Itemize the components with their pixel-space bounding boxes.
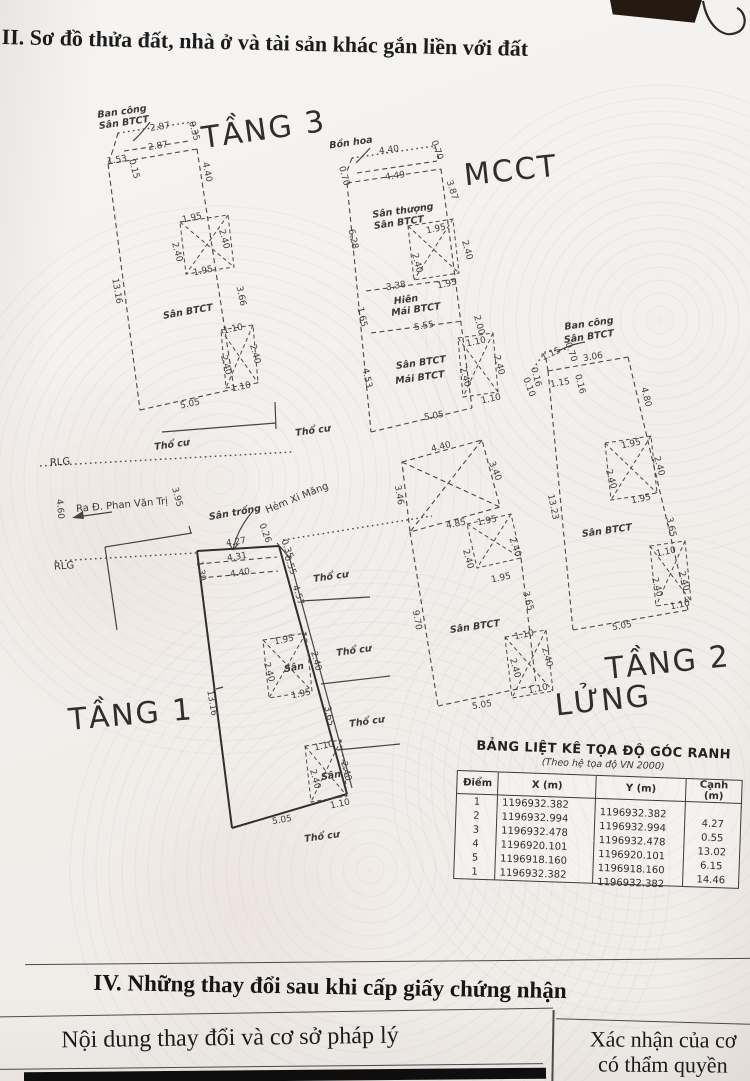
- dimension-label: 4.31: [226, 551, 247, 564]
- dimension-label: 4.40: [229, 567, 251, 580]
- scan-artifact-curl: [703, 1, 745, 34]
- dimension-label: 2.40: [539, 646, 554, 668]
- dimension-label: 1.10: [222, 322, 244, 336]
- section4-right-header-line1: Xác nhận của cơ: [558, 1026, 750, 1053]
- dimension-label: 3.65: [664, 516, 678, 538]
- area-label: Sân BTCT: [449, 618, 502, 636]
- area-label: Thổ cư: [336, 642, 374, 659]
- dimension-label: 1.10: [329, 797, 351, 811]
- note-label: RLG: [50, 456, 71, 468]
- section4-right-header: Xác nhận của cơ có thẩm quyền: [558, 1026, 750, 1078]
- scanned-document-photo: II. Sơ đồ thửa đất, nhà ở và tài sản khá…: [0, 0, 750, 1081]
- dimension-label: 1.10: [513, 628, 535, 642]
- floor-plan-drawing: Ban côngSân BTCT2.870.352.871.530.154.40…: [0, 0, 750, 1081]
- coord-cell: 3: [455, 822, 497, 837]
- dimension-label: 2.40: [491, 354, 506, 376]
- dimension-label: 4.49: [384, 170, 406, 183]
- dimension-label: 1.15: [549, 377, 570, 390]
- coord-cell: 14.46: [683, 872, 739, 888]
- dimension-label: 5.05: [471, 699, 492, 712]
- dimension-label: 2.00: [471, 314, 486, 336]
- area-label: Sân: [283, 661, 305, 675]
- coord-cell: 4: [455, 836, 497, 851]
- dimension-label: 0.70: [428, 139, 444, 162]
- dimension-label: 1.10: [230, 380, 252, 394]
- dimension-label: 4.80: [638, 386, 653, 408]
- dimension-label: 2.87: [147, 140, 168, 153]
- dimension-label: 1.10: [669, 598, 691, 612]
- coordinate-table-block: BẢNG LIỆT KÊ TỌA ĐỘ GÓC RANH (Theo hệ tọ…: [453, 738, 750, 889]
- coord-cell: 2: [456, 808, 498, 823]
- dimension-label: 1.95: [290, 688, 312, 702]
- coord-cell: 1: [456, 793, 498, 809]
- dimension-label: 3.87: [444, 179, 460, 201]
- coord-cell: 1196932.382: [595, 798, 685, 816]
- coord-cell: 1196932.382: [495, 865, 593, 883]
- dimension-label: 4.27: [225, 536, 246, 549]
- col-header-diem: Điểm: [457, 770, 499, 794]
- dimension-label: 1.95: [192, 265, 214, 279]
- dimension-label: 3.65: [520, 590, 535, 612]
- dimension-label: 3.95: [169, 486, 184, 508]
- dimension-label: 2.40: [261, 661, 276, 683]
- area-label: Sân trống: [208, 503, 262, 523]
- plan-title-lung: LỬNG: [553, 675, 653, 724]
- dimension-label: 3.66: [234, 285, 248, 307]
- area-label: Bồn hoa: [329, 135, 374, 152]
- dimension-label: 2.40: [247, 343, 262, 365]
- area-label: Thổ cư: [304, 828, 342, 845]
- dimension-label: 1.95: [630, 493, 652, 507]
- dimension-label: 13.16: [109, 278, 123, 305]
- dimension-label: 1.15: [540, 346, 562, 364]
- dimension-label: 6.28: [346, 228, 360, 250]
- dimension-label: 4.85: [445, 518, 467, 532]
- dimension-label: 9.70: [410, 609, 423, 631]
- dimension-label: 1.95: [273, 634, 295, 648]
- dimension-label: 3.46: [392, 484, 405, 506]
- dimension-label: 3.40: [486, 460, 503, 483]
- dimension-label: 4.60: [54, 499, 66, 520]
- plan-title-tang-1: TẦNG 1: [66, 688, 195, 738]
- dimension-label: 1.95: [181, 212, 203, 226]
- dimension-label: 0.15: [126, 158, 141, 180]
- dimension-label: 0.70: [336, 165, 351, 187]
- dimension-label: 4.40: [378, 144, 400, 157]
- dimension-label: 0.35: [186, 120, 201, 142]
- area-label: Thổ cư: [313, 568, 351, 585]
- dimension-label: 1.95: [620, 438, 642, 452]
- dimension-label: 3.65: [322, 705, 336, 727]
- plan-title-tang-3: TẦNG 3: [198, 100, 328, 156]
- area-label: Sân BTCT: [162, 302, 215, 322]
- coordinate-table: Điểm X (m) Y (m) Cạnh (m) 11196932.38211…: [453, 770, 743, 889]
- dimension-label: 5.05: [423, 410, 444, 423]
- area-label: Sân BTCT: [581, 522, 634, 540]
- dimension-label: 2.40: [409, 252, 424, 274]
- dimension-label: 4.40: [430, 440, 452, 455]
- dimension-label: 1.65: [355, 306, 369, 328]
- coord-cell: 1: [454, 864, 496, 880]
- section4-right-header-line2: có thẩm quyền: [558, 1051, 750, 1078]
- col-header-canh: Cạnh (m): [686, 778, 743, 803]
- plan-title-mcct: MCCT: [462, 149, 559, 194]
- dimension-label: 2.40: [169, 241, 184, 263]
- dimension-label: 1.30: [194, 560, 207, 582]
- note-label: RLG: [54, 560, 75, 572]
- plan-annotations: Ban côngSân BTCT2.870.352.871.530.154.40…: [50, 100, 732, 845]
- dimension-label: 1.95: [476, 515, 498, 529]
- coord-cell: 5: [454, 850, 496, 865]
- area-label: Thổ cư: [154, 436, 192, 453]
- plan-title-tang-2: TẦNG 2: [602, 635, 732, 687]
- dimension-label: 1.53: [106, 154, 127, 167]
- dimension-label: 0.16: [572, 373, 587, 395]
- area-label: Mái BTCT: [395, 369, 447, 387]
- area-label: Thổ cư: [349, 713, 387, 730]
- dimension-label: 1.10: [313, 739, 335, 753]
- dimension-label: 1.10: [465, 335, 487, 349]
- note-label: Hẻm Xi Măng: [264, 480, 330, 516]
- col-header-x: X (m): [498, 772, 597, 798]
- dimension-label: 13.16: [204, 690, 218, 717]
- dimension-label: 2.40: [651, 455, 666, 477]
- col-header-y: Y (m): [596, 775, 687, 801]
- dimension-label: 4.40: [200, 161, 214, 183]
- dimension-label: 2.40: [218, 354, 233, 376]
- dimension-label: 1.10: [655, 545, 677, 559]
- note-label: Ra Đ. Phan Văn Trị: [76, 496, 169, 515]
- dimension-label: 3.38: [385, 280, 407, 293]
- dimension-label: 1.10: [480, 392, 502, 406]
- dimension-label: 5.05: [611, 620, 632, 633]
- dimension-label: 2.40: [603, 468, 618, 490]
- dimension-label: 2.40: [216, 228, 231, 250]
- area-label: Sân: [320, 769, 342, 783]
- dimension-label: 2.87: [149, 121, 170, 134]
- dimension-label: 2.40: [507, 657, 522, 679]
- dimension-label: 2.40: [649, 576, 664, 598]
- dimension-label: 5.05: [179, 398, 201, 412]
- area-label: Thổ cư: [295, 422, 333, 439]
- dimension-label: 13.23: [545, 493, 560, 520]
- dimension-label: 4.53: [360, 367, 374, 389]
- dimension-label: 0.26: [256, 522, 272, 545]
- dimension-label: 2.40: [459, 239, 474, 261]
- dimension-label: 2.40: [460, 548, 475, 570]
- dimension-label: 1.95: [436, 278, 458, 292]
- dimension-label: 1.95: [490, 572, 512, 586]
- dimension-label: 1.10: [527, 682, 549, 696]
- dimension-label: 5.55: [413, 320, 434, 333]
- dimension-label: 2.40: [676, 570, 691, 592]
- dimension-label: 5.05: [271, 814, 292, 827]
- dimension-label: 2.40: [457, 366, 472, 388]
- dimension-label: 2.40: [506, 536, 522, 559]
